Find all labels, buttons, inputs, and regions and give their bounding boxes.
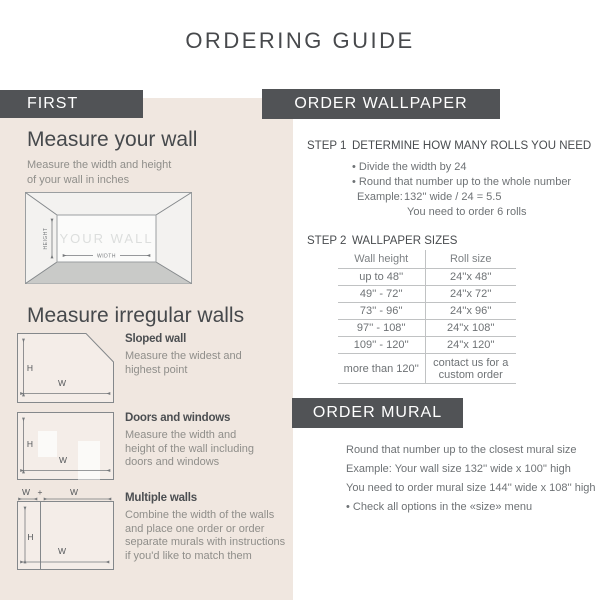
multiple-walls-description: Combine the width of the walls and place… (125, 509, 297, 563)
roll-size-cell: 24''x 120'' (425, 337, 516, 354)
col-header-roll-size: Roll size (425, 250, 516, 269)
w-label: W (58, 546, 66, 556)
wall-height-cell: 109'' - 120'' (338, 337, 425, 354)
example-result: You need to order 6 rolls (407, 206, 526, 218)
page-title: ORDERING GUIDE (0, 28, 600, 54)
step2-row: STEP 2 WALLPAPER SIZES (307, 235, 457, 247)
roll-size-cell: 24''x 48'' (425, 269, 516, 286)
description-line: separate murals with instructions (125, 536, 297, 550)
w-label: W (59, 455, 67, 465)
description-line: and place one order or order (125, 523, 297, 537)
height-label: HEIGHT (43, 228, 49, 250)
wall-height-cell: 73'' - 96'' (338, 303, 425, 320)
doors-windows-diagram: H W (17, 412, 114, 480)
measure-wall-subtitle: Measure the width and height of your wal… (27, 158, 171, 187)
mural-instructions: Round that number up to the closest mura… (346, 441, 596, 517)
table-row: 73'' - 96'' 24''x 96'' (338, 303, 516, 320)
sloped-wall-diagram: H W (17, 333, 114, 403)
bullet-item: • Round that number up to the whole numb… (352, 175, 571, 190)
table-header-row: Wall height Roll size (338, 250, 516, 269)
first-section-label: FIRST (27, 95, 78, 112)
plus-label: + (38, 487, 43, 497)
table-row: up to 48'' 24''x 48'' (338, 269, 516, 286)
first-section-header: FIRST (0, 90, 143, 118)
multiple-walls-title: Multiple walls (125, 492, 197, 504)
description-line: Measure the width and (125, 429, 297, 443)
ordering-guide-page: ORDERING GUIDE FIRST Measure your wall M… (0, 0, 600, 600)
subtitle-line: Measure the width and height (27, 158, 171, 173)
multiple-walls-width-arrows: W + W (17, 487, 114, 501)
roll-size-cell: 24''x 96'' (425, 303, 516, 320)
mural-line: You need to order mural size 144'' wide … (346, 479, 596, 498)
sloped-wall-title: Sloped wall (125, 333, 186, 345)
bullet-item: • Divide the width by 24 (352, 160, 571, 175)
step2-title: WALLPAPER SIZES (352, 235, 457, 247)
measure-wall-heading: Measure your wall (27, 128, 197, 152)
multiple-walls-diagram: H W (17, 501, 114, 570)
step2-label: STEP 2 (307, 235, 352, 247)
doors-windows-title: Doors and windows (125, 412, 230, 424)
description-line: Combine the width of the walls (125, 509, 297, 523)
mural-line: Round that number up to the closest mura… (346, 441, 596, 460)
w-label: W (58, 378, 66, 388)
mural-line: Example: Your wall size 132'' wide x 100… (346, 460, 596, 479)
order-mural-label: ORDER MURAL (313, 404, 442, 421)
table-row: 97'' - 108'' 24''x 108'' (338, 320, 516, 337)
wall-perspective-diagram: YOUR WALL HEIGHT WIDTH (25, 192, 192, 284)
mural-line: • Check all options in the «size» menu (346, 498, 596, 517)
example-value: 132'' wide / 24 = 5.5 (404, 191, 501, 203)
table-row: 49'' - 72'' 24''x 72'' (338, 286, 516, 303)
example-label: Example: (357, 191, 404, 203)
wall-height-cell: 97'' - 108'' (338, 320, 425, 337)
subtitle-line: of your wall in inches (27, 173, 171, 188)
sloped-wall-description: Measure the widest and highest point (125, 350, 297, 377)
h-label: H (27, 532, 33, 542)
irregular-walls-heading: Measure irregular walls (27, 304, 244, 328)
roll-size-cell: 24''x 72'' (425, 286, 516, 303)
width-label: WIDTH (97, 254, 116, 260)
order-wallpaper-label: ORDER WALLPAPER (294, 95, 467, 112)
table-row: more than 120'' contact us for a custom … (338, 354, 516, 384)
h-label: H (27, 363, 33, 373)
h-label: H (27, 439, 33, 449)
description-line: Measure the widest and (125, 350, 297, 364)
description-line: height of the wall including (125, 443, 297, 457)
roll-size-cell: contact us for a custom order (425, 354, 516, 384)
step1-bullets: • Divide the width by 24 • Round that nu… (352, 160, 571, 190)
door-shape (78, 441, 100, 480)
wallpaper-sizes-table: Wall height Roll size up to 48'' 24''x 4… (338, 250, 516, 384)
description-line: highest point (125, 364, 297, 378)
wall-height-cell: more than 120'' (338, 354, 425, 384)
table-row: 109'' - 120'' 24''x 120'' (338, 337, 516, 354)
col-header-wall-height: Wall height (338, 250, 425, 269)
order-mural-header: ORDER MURAL (292, 398, 463, 428)
step1-label: STEP 1 (307, 140, 352, 152)
w1-label: W (22, 487, 30, 497)
roll-size-cell: 24''x 108'' (425, 320, 516, 337)
description-line: if you'd like to match them (125, 550, 297, 564)
description-line: doors and windows (125, 456, 297, 470)
doors-windows-description: Measure the width and height of the wall… (125, 429, 297, 470)
wall-height-cell: 49'' - 72'' (338, 286, 425, 303)
wall-height-cell: up to 48'' (338, 269, 425, 286)
window-shape (38, 431, 57, 457)
order-wallpaper-header: ORDER WALLPAPER (262, 89, 500, 119)
step1-title: DETERMINE HOW MANY ROLLS YOU NEED (352, 140, 591, 152)
your-wall-label: YOUR WALL (59, 231, 153, 246)
step1-example: Example: 132'' wide / 24 = 5.5 (357, 191, 501, 203)
w2-label: W (70, 487, 78, 497)
step1-row: STEP 1 DETERMINE HOW MANY ROLLS YOU NEED (307, 140, 591, 152)
